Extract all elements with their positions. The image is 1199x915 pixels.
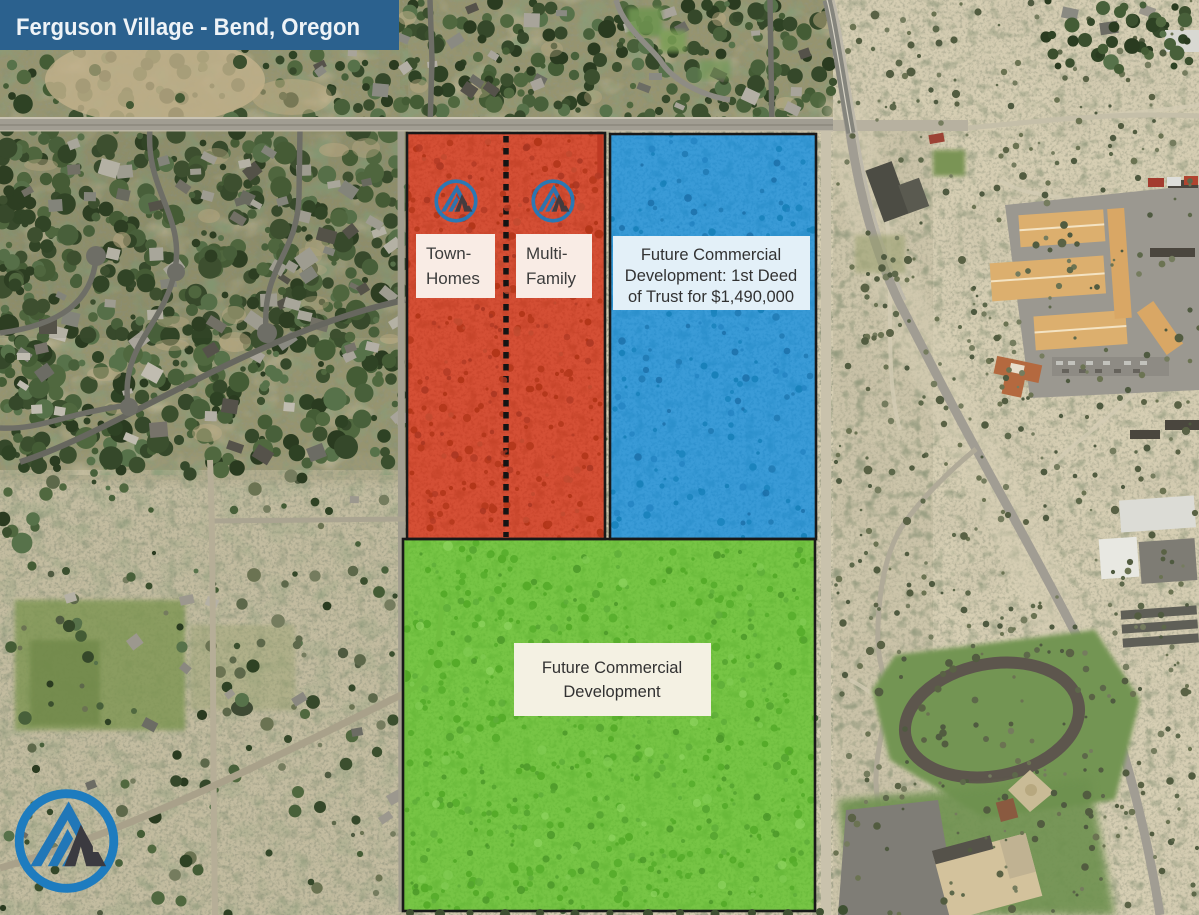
svg-text:Family: Family	[526, 269, 577, 288]
svg-text:Multi-: Multi-	[526, 244, 568, 263]
svg-text:Development: Development	[563, 683, 661, 701]
svg-text:Homes: Homes	[426, 269, 480, 288]
svg-text:Town-: Town-	[426, 244, 471, 263]
svg-text:Future Commercial: Future Commercial	[542, 659, 682, 677]
svg-text:Development: 1st Deed: Development: 1st Deed	[625, 267, 797, 285]
svg-text:Ferguson Village - Bend, Orego: Ferguson Village - Bend, Oregon	[16, 14, 360, 41]
svg-text:Future Commercial: Future Commercial	[641, 246, 781, 264]
svg-text:of Trust for $1,490,000: of Trust for $1,490,000	[628, 288, 794, 306]
